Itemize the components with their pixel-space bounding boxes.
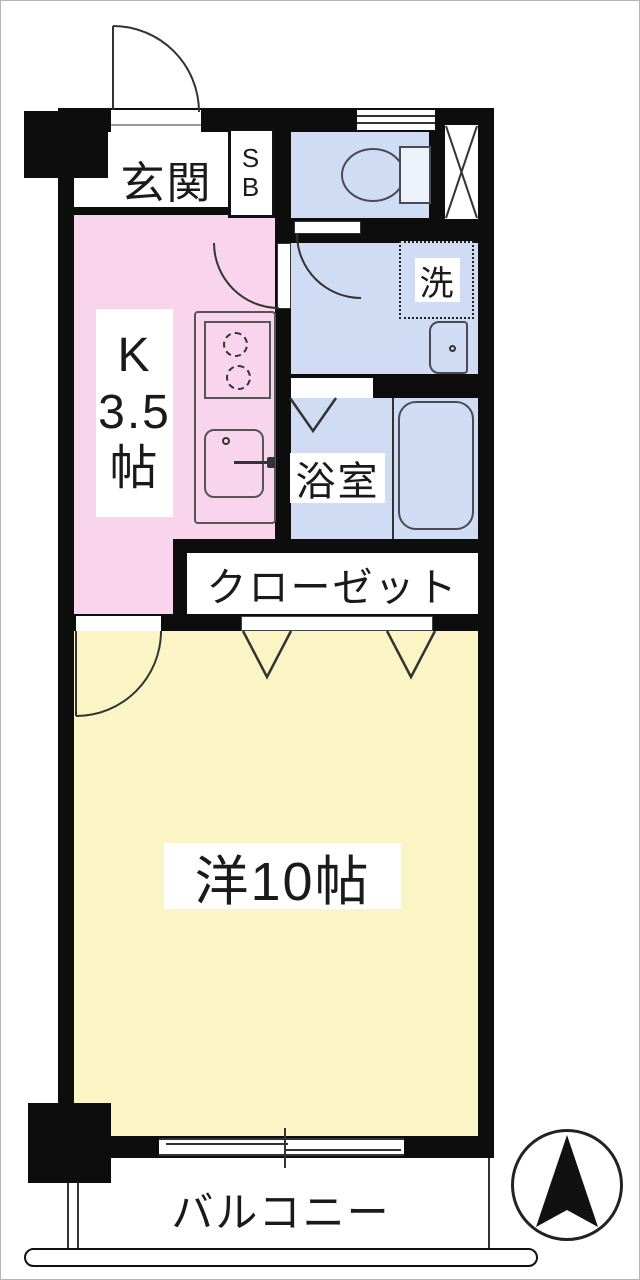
washbasin-faucet-dot — [449, 345, 456, 352]
bathroom-divider-line — [392, 398, 394, 539]
left-wall — [58, 108, 74, 1158]
sink-drain-dot — [222, 437, 230, 445]
balcony-label: バルコニー — [161, 1181, 401, 1237]
stove-burner-2 — [226, 365, 251, 390]
closet-door-track — [241, 616, 433, 631]
bathtub-icon — [398, 401, 474, 530]
floor-plan: S B 玄関 洗 浴室 K 3.5 帖 クローゼット — [0, 0, 640, 1280]
toilet-window — [357, 110, 435, 130]
genkan-label: 玄関 — [109, 151, 224, 207]
kitchen-label: K 3.5 帖 — [96, 309, 173, 517]
kitchen-room-door-opening — [76, 616, 161, 631]
sink-icon — [204, 429, 264, 498]
right-wall — [478, 108, 494, 1158]
shoe-box-label: S B — [228, 132, 275, 214]
shoe-box-label-s: S — [242, 144, 261, 173]
bathroom-folding-door-icon — [287, 397, 339, 435]
bottom-left-column — [28, 1103, 111, 1183]
toilet-window-line-1 — [357, 115, 435, 117]
toilet-tank-icon — [399, 146, 431, 204]
sliding-window-leaf-left — [166, 1143, 288, 1145]
toilet-bowl-icon — [341, 148, 405, 202]
kitchen-door-leaf — [277, 243, 291, 309]
balcony-edge-rail — [24, 1248, 538, 1267]
toilet-window-line-2 — [357, 122, 435, 124]
pipe-space-x-icon — [445, 125, 478, 219]
balcony-left-line-2 — [77, 1183, 79, 1251]
north-arrow-icon — [511, 1129, 623, 1241]
stove-burner-1 — [223, 332, 248, 357]
sink-faucet-knob — [267, 457, 275, 468]
kitchen-label-k: K — [117, 328, 151, 385]
balcony-right-line — [488, 1158, 490, 1251]
bathroom-label: 浴室 — [290, 453, 385, 503]
entrance-sill-line — [111, 124, 201, 126]
entrance-door-arc — [113, 25, 200, 112]
shoe-box-label-b: B — [242, 173, 261, 202]
kitchen-label-size: 3.5 — [98, 385, 171, 442]
washer-label: 洗 — [415, 258, 460, 302]
balcony-left-line-1 — [67, 1183, 69, 1251]
kitchen-label-jo: 帖 — [109, 441, 159, 498]
closet-top-wall — [173, 539, 478, 553]
kitchen-floor-lower — [74, 541, 173, 616]
sliding-window-center-tick — [284, 1128, 286, 1168]
sliding-window-leaf-right — [284, 1149, 401, 1151]
western-room-label: 洋10帖 — [164, 843, 401, 909]
balcony-sliding-window — [159, 1138, 404, 1156]
entrance-opening — [111, 110, 201, 132]
top-left-column — [24, 111, 108, 178]
closet-folding-doors-icon — [239, 630, 439, 680]
closet-label: クローゼット — [187, 553, 478, 614]
washroom-door-leaf — [294, 221, 361, 234]
bathroom-door-opening — [291, 378, 373, 398]
